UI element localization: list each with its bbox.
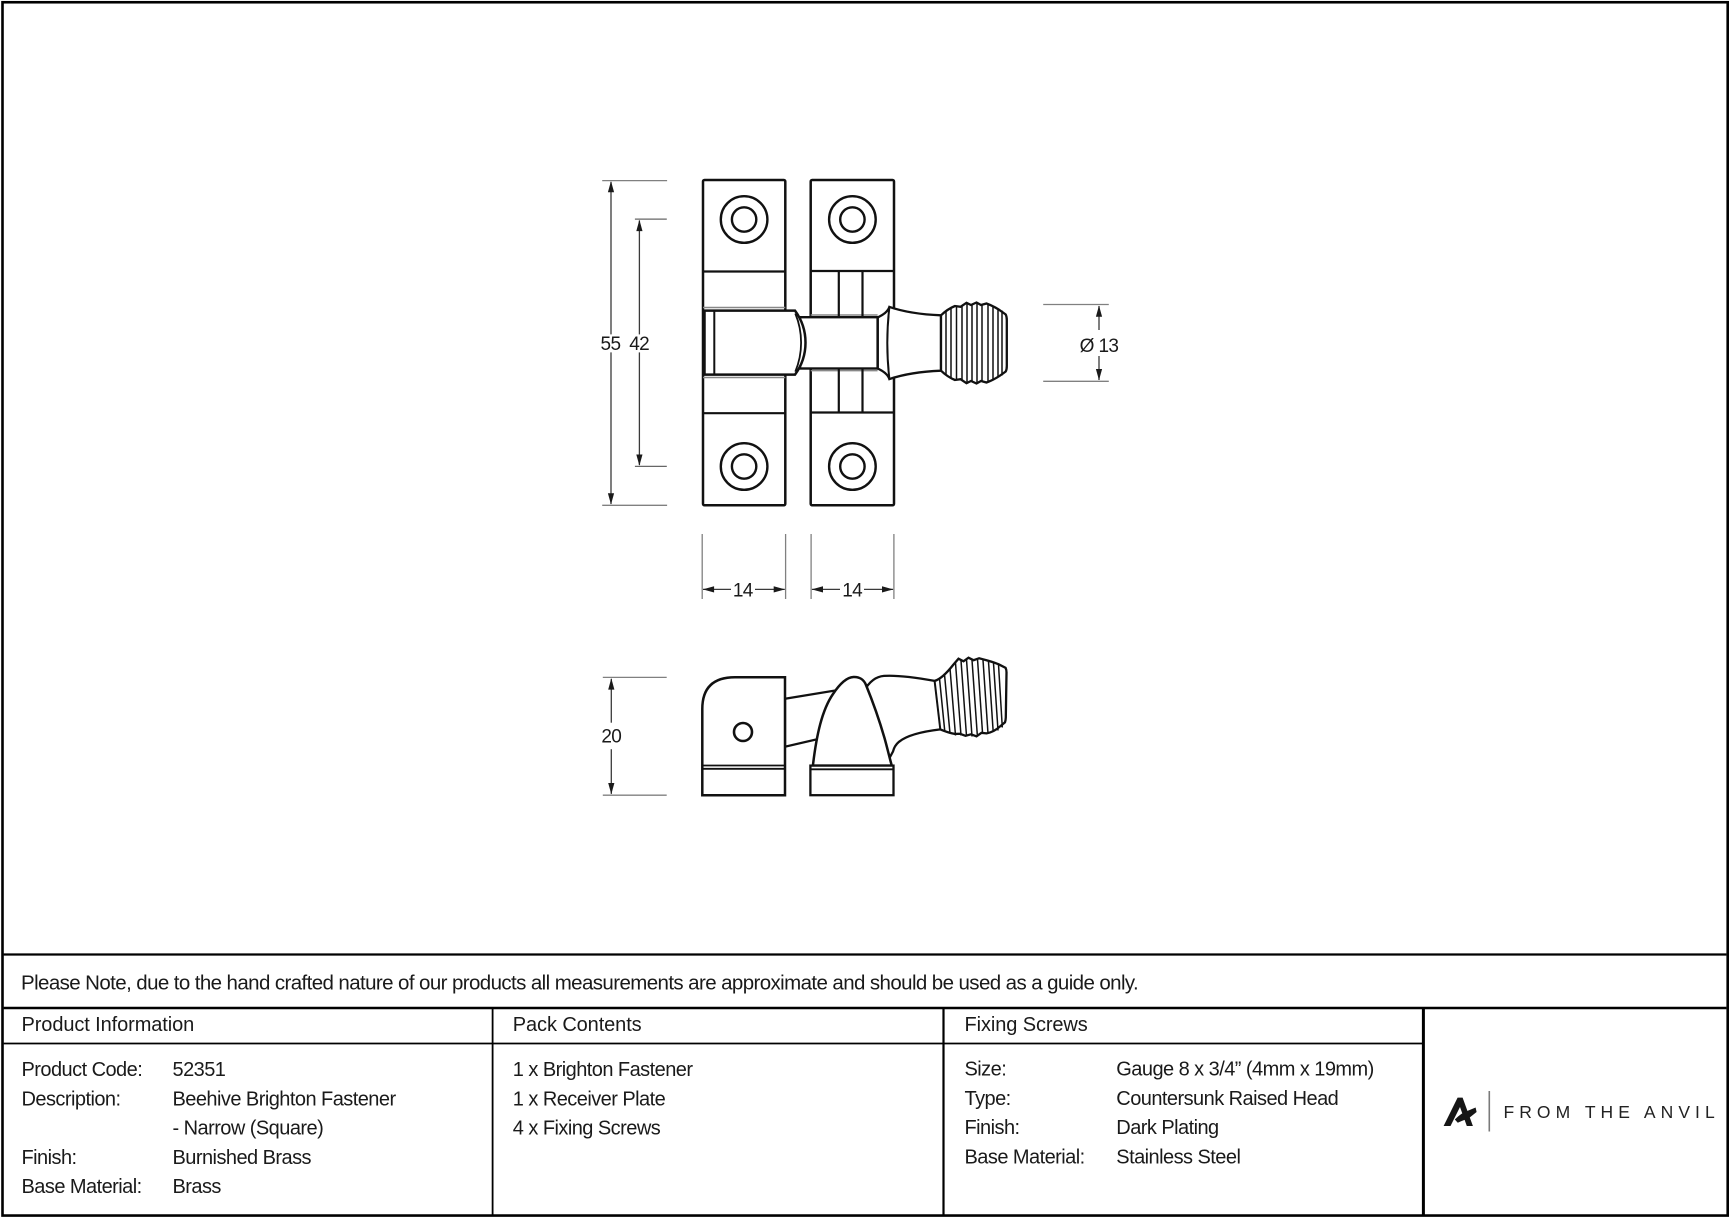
- svg-text:52351: 52351: [173, 1059, 226, 1081]
- svg-text:Fixing Screws: Fixing Screws: [965, 1014, 1088, 1036]
- svg-text:Description:: Description:: [22, 1088, 121, 1110]
- svg-text:Please Note, due to the hand c: Please Note, due to the hand crafted nat…: [21, 972, 1138, 995]
- svg-text:Dark Plating: Dark Plating: [1116, 1117, 1218, 1139]
- svg-text:Size:: Size:: [965, 1059, 1007, 1081]
- svg-text:42: 42: [629, 334, 649, 355]
- svg-text:14: 14: [842, 580, 863, 601]
- svg-text:Gauge 8 x 3/4” (4mm x 19mm): Gauge 8 x 3/4” (4mm x 19mm): [1116, 1059, 1373, 1081]
- svg-text:14: 14: [733, 580, 754, 601]
- svg-text:Product Code:: Product Code:: [22, 1059, 143, 1081]
- svg-text:Product Information: Product Information: [22, 1014, 195, 1036]
- svg-text:Beehive Brighton Fastener: Beehive Brighton Fastener: [173, 1088, 397, 1110]
- svg-text:- Narrow (Square): - Narrow (Square): [173, 1118, 324, 1140]
- svg-text:1 x Receiver Plate: 1 x Receiver Plate: [513, 1088, 666, 1110]
- svg-text:Ø 13: Ø 13: [1080, 336, 1119, 357]
- svg-text:55: 55: [601, 334, 621, 355]
- svg-text:Pack Contents: Pack Contents: [513, 1014, 642, 1036]
- svg-text:1 x Brighton Fastener: 1 x Brighton Fastener: [513, 1059, 694, 1081]
- svg-text:Finish:: Finish:: [965, 1117, 1020, 1139]
- svg-text:20: 20: [601, 726, 621, 747]
- svg-text:Type:: Type:: [965, 1088, 1011, 1110]
- svg-text:FROM THE ANVIL: FROM THE ANVIL: [1504, 1102, 1720, 1122]
- svg-text:Base Material:: Base Material:: [22, 1176, 142, 1198]
- svg-text:4 x Fixing Screws: 4 x Fixing Screws: [513, 1118, 661, 1140]
- svg-text:Base Material:: Base Material:: [965, 1146, 1085, 1168]
- svg-text:Burnished Brass: Burnished Brass: [173, 1147, 312, 1169]
- svg-text:Countersunk Raised Head: Countersunk Raised Head: [1116, 1088, 1338, 1110]
- svg-text:Finish:: Finish:: [22, 1147, 77, 1169]
- svg-text:Stainless Steel: Stainless Steel: [1116, 1146, 1240, 1168]
- svg-text:Brass: Brass: [173, 1176, 222, 1198]
